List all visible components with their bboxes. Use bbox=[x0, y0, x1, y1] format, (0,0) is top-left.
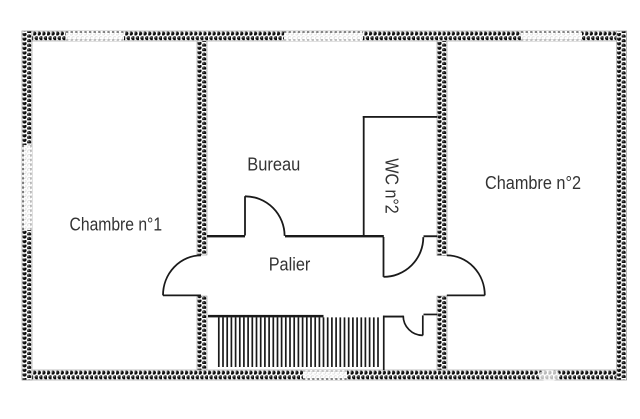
svg-text:Chambre n°2: Chambre n°2 bbox=[485, 173, 581, 193]
svg-text:Palier: Palier bbox=[269, 255, 311, 275]
svg-text:WC n°2: WC n°2 bbox=[382, 158, 402, 214]
svg-text:Chambre n°1: Chambre n°1 bbox=[70, 214, 163, 234]
svg-text:Bureau: Bureau bbox=[247, 154, 300, 174]
